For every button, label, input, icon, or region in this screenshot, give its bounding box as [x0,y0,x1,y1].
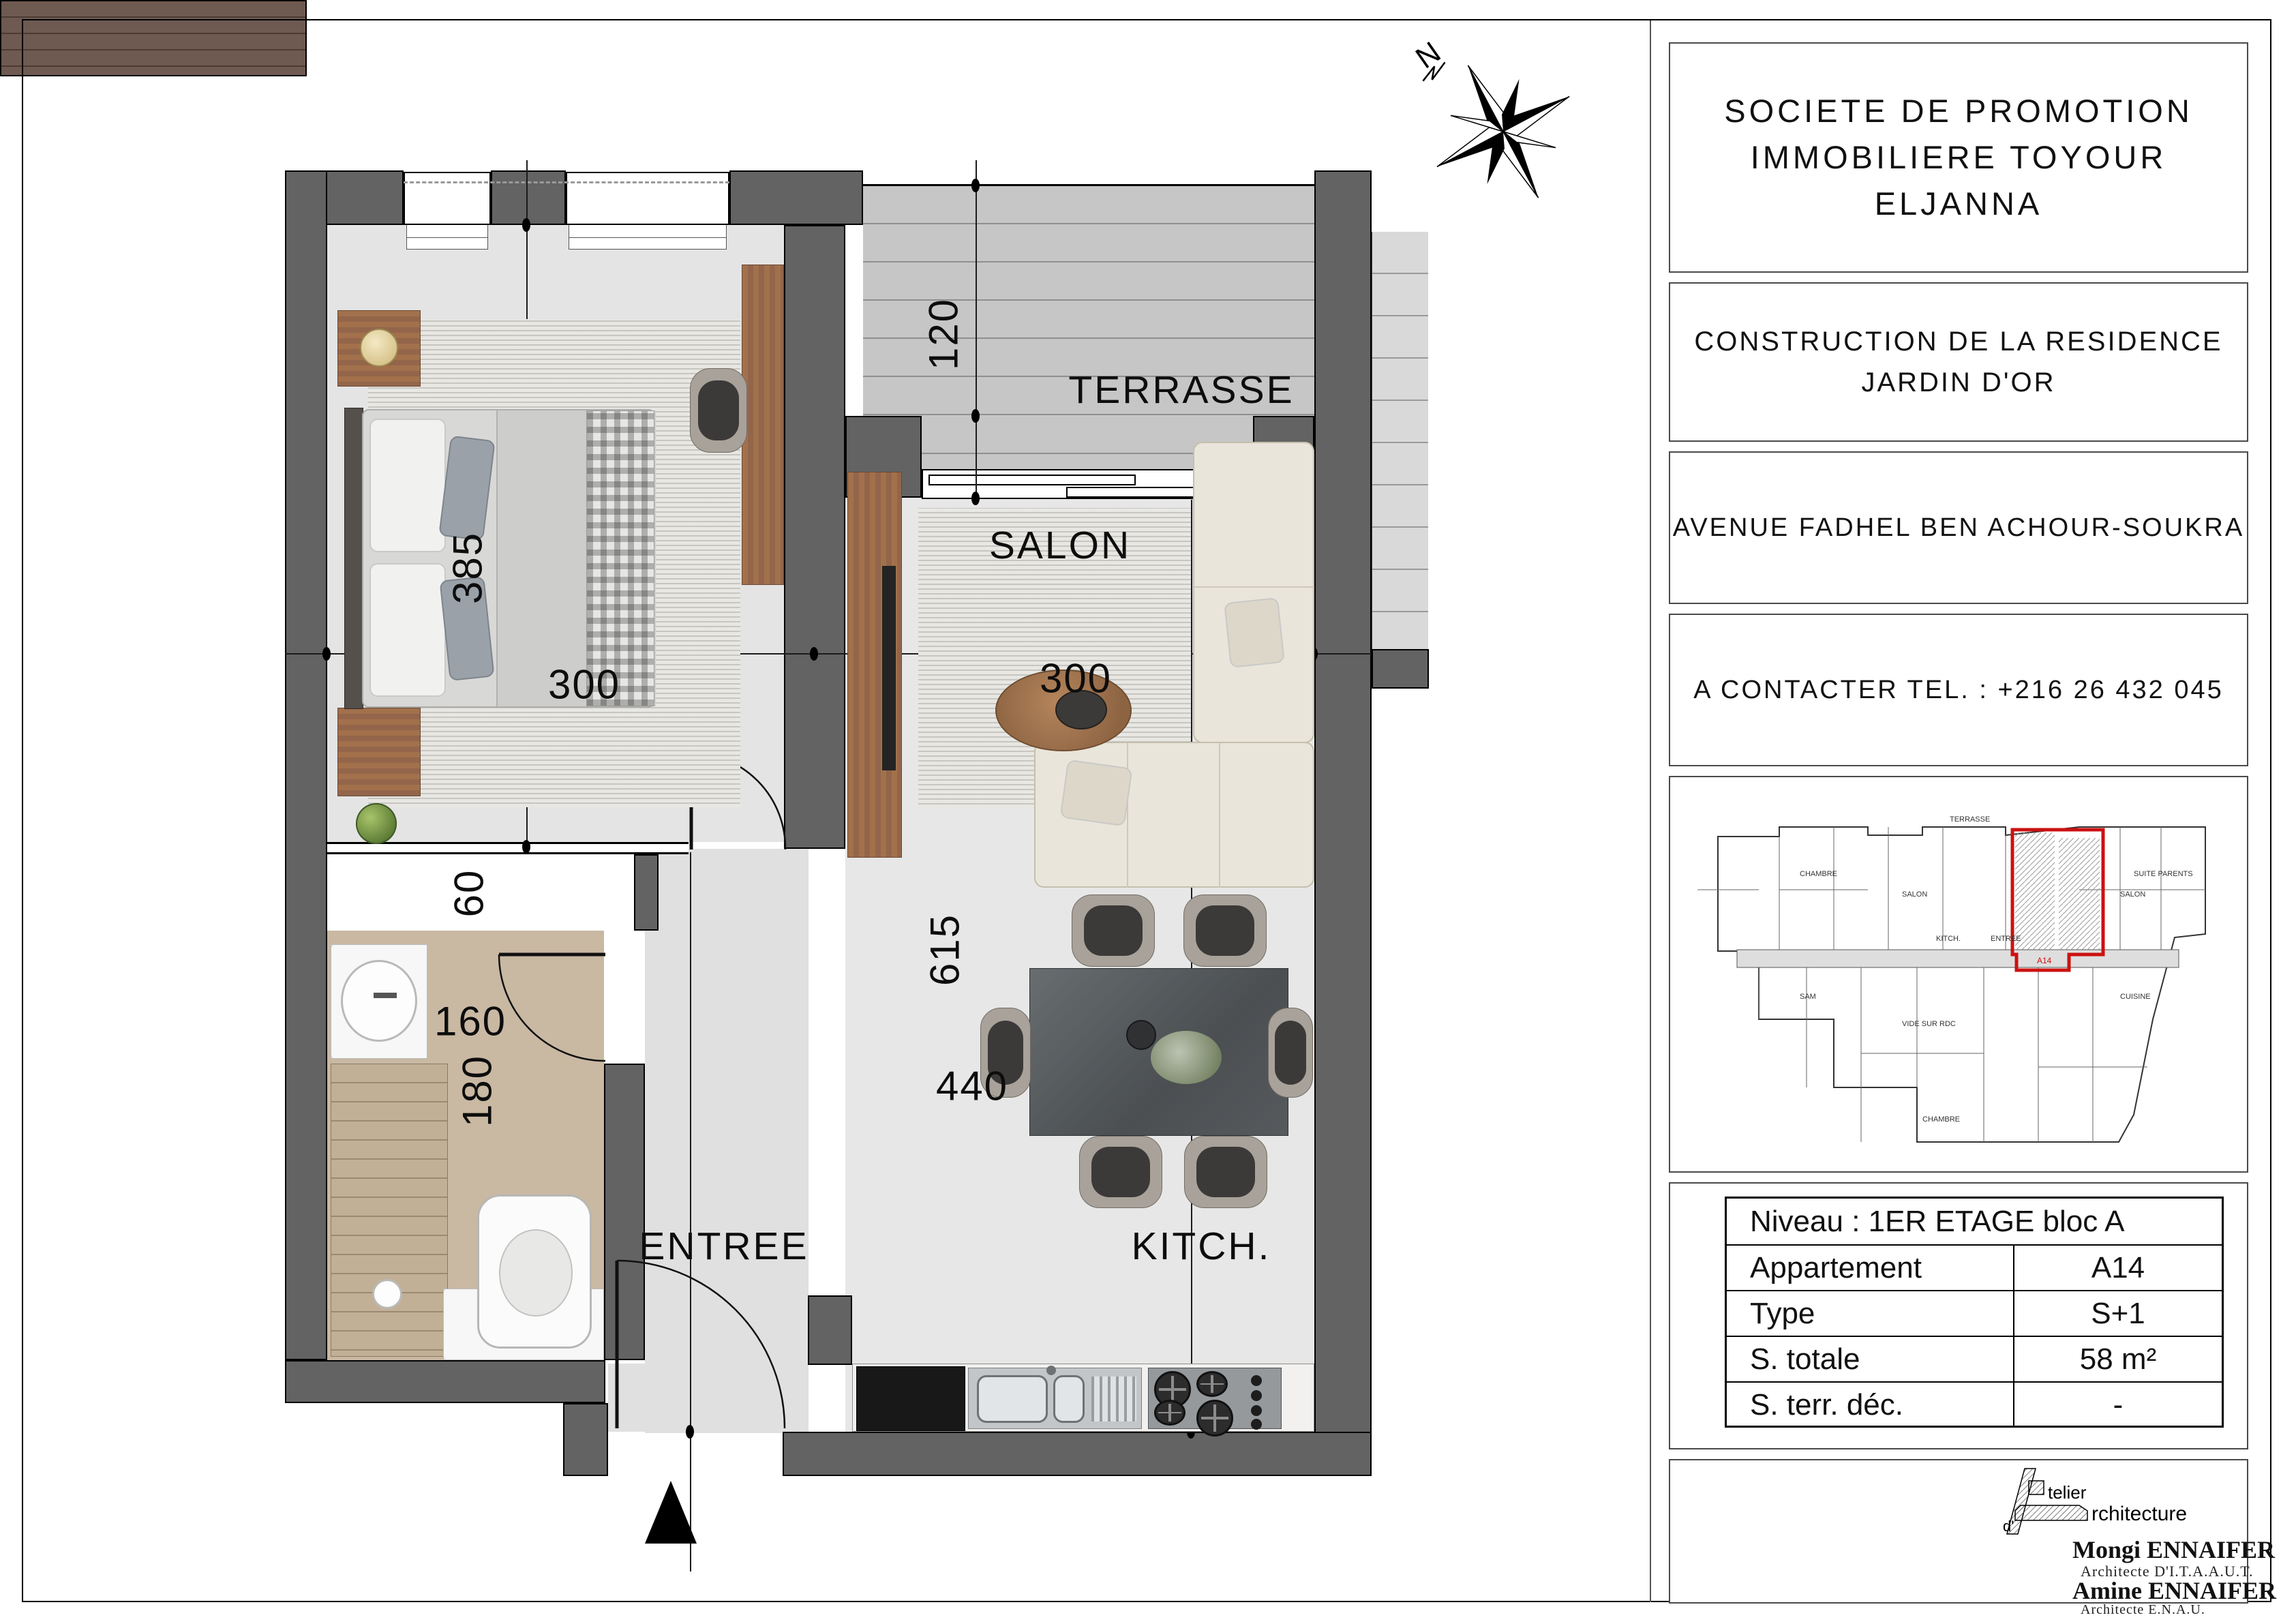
neighbor-wall-cap [1372,649,1429,689]
value-cell: A14 [2013,1246,2222,1290]
sofa-chaise [1193,442,1314,743]
svg-text:SALON: SALON [2120,890,2145,899]
dim-dot [971,492,980,505]
window-axis-dashed-line [404,181,729,183]
architect-name: Mongi ENNAIFER [2072,1535,2275,1564]
gas-stove [1148,1368,1282,1429]
bathroom-door-swing [495,949,609,1065]
dim-bedroom-385: 385 [444,532,492,604]
table-plant [1151,1031,1222,1084]
refrigerator [856,1366,965,1431]
svg-text:KITCH.: KITCH. [1936,935,1961,943]
wall-closet-end [634,854,659,931]
dim-bedroom-300: 300 [548,661,620,708]
dim-bath-160: 160 [434,998,507,1045]
svg-text:CHAMBRE: CHAMBRE [1800,870,1837,878]
svg-text:SALON: SALON [1902,890,1927,899]
north-compass-icon: N [1411,33,1588,217]
room-label-entree: ENTREE [639,1224,809,1269]
table-row: Type S+1 [1727,1290,2222,1336]
toilet [477,1194,592,1349]
address-line: AVENUE FADHEL BEN ACHOUR-SOUKRA [1673,513,2244,543]
bathroom-sink [341,960,417,1042]
wall-bathroom-bottom [285,1360,605,1403]
svg-text:TERRASSE: TERRASSE [1950,815,1990,824]
label-cell: Appartement [1727,1246,2013,1290]
entrance-arrow-icon [645,1481,697,1544]
table-carafe [1126,1020,1156,1050]
wall-top-corner [729,170,863,225]
dim-dot [522,840,530,854]
window-sill [569,225,727,250]
svg-text:ENTREE: ENTREE [1991,935,2021,943]
value-cell: - [2013,1383,2222,1427]
bedroom-window [566,172,729,225]
svg-text:d': d' [2003,1518,2014,1535]
shower-drain [372,1279,402,1309]
dining-chair [1079,1136,1162,1208]
dining-chair [1184,1136,1267,1208]
table-row: S. totale 58 m² [1727,1336,2222,1381]
value-cell: S+1 [2013,1291,2222,1336]
wall-bedroom-living [784,225,845,849]
svg-text:CHAMBRE: CHAMBRE [1922,1115,1960,1124]
shower [331,1064,448,1357]
svg-text:rchitecture: rchitecture [2091,1503,2187,1525]
sink-faucet [374,993,397,998]
key-plan-thumbnail: CHAMBRE SALON TERRASSE SALON KITCH. ENTR… [1697,794,2222,1156]
svg-text:SAM: SAM [1800,993,1816,1001]
room-label-terrasse: TERRASSE [1068,367,1294,412]
room-label-kitchen: KITCH. [1132,1224,1271,1269]
value-cell: 58 m² [2013,1337,2222,1381]
wall-pier [491,170,566,225]
wall-bedroom-south [327,842,689,854]
svg-text:telier: telier [2048,1482,2087,1503]
room-label-salon: SALON [989,523,1131,568]
contact-line: A CONTACTER TEL. : +216 26 432 045 [1693,676,2224,705]
dining-chair [1183,894,1267,967]
bed-pillow [369,563,446,697]
dim-line [976,160,977,500]
label-cell: Type [1727,1291,2013,1336]
architect-title: Architecte E.N.A.U. [2081,1602,2205,1618]
dim-line [1191,500,1192,1432]
window-sill [406,225,488,250]
wall-bottom [783,1432,1372,1476]
table-row: S. terr. déc. - [1727,1381,2222,1427]
dim-dot [322,647,331,661]
bed-pillow [369,419,446,552]
table-row: Niveau : 1ER ETAGE bloc A [1727,1199,2222,1244]
sofa-pillow [1059,760,1132,827]
dim-salon-300: 300 [1040,655,1112,702]
desk-chair [690,368,747,453]
dim-dot [522,218,530,232]
architect-logo: telier d' rchitecture [1997,1463,2243,1538]
dim-dot [971,179,980,192]
dining-chair [1268,1008,1313,1098]
tv [882,566,896,770]
sofa-pillow [1224,597,1285,668]
dim-dot [810,647,818,661]
dim-terrasse-120: 120 [920,298,967,370]
bed-headboard [344,408,363,709]
faucet [1046,1366,1056,1375]
dim-bath-180: 180 [454,1055,501,1127]
svg-text:SUITE PARENTS: SUITE PARENTS [2134,870,2193,878]
nightstand [337,708,421,796]
drawing-sheet: TERRASSE SALON ENTREE KITCH. 120 385 300… [0,0,2296,1624]
dining-chair [1072,894,1155,967]
company-name-box: SOCIETE DE PROMOTION IMMOBILIERE TOYOUR … [1669,42,2248,273]
svg-text:CUISINE: CUISINE [2120,993,2151,1001]
desk [742,265,784,585]
company-line2: IMMOBILIERE TOYOUR ELJANNA [1670,134,2247,227]
neighbor-terrace-strip [1372,232,1428,650]
project-line1: CONSTRUCTION DE LA RESIDENCE [1694,321,2222,362]
label-cell: S. terr. déc. [1727,1383,2013,1427]
architect-name: Amine ENNAIFER [2072,1576,2276,1605]
contact-box: A CONTACTER TEL. : +216 26 432 045 [1669,614,2248,766]
wall-left [285,170,327,1360]
wall-right [1314,170,1372,1476]
plant-pot [356,803,397,844]
dim-line [690,852,691,1572]
svg-text:VIDE SUR RDC: VIDE SUR RDC [1902,1020,1956,1028]
project-box: CONSTRUCTION DE LA RESIDENCE JARDIN D'OR [1669,282,2248,442]
panel-divider [1650,20,1651,1602]
wall-bottom-left-corner [563,1403,608,1476]
kitchen-sink [968,1368,1142,1429]
svg-text:N: N [1411,35,1447,75]
dim-closet-60: 60 [446,869,493,918]
label-cell: S. totale [1727,1337,2013,1381]
dim-living-440: 440 [936,1063,1008,1110]
niveau-cell: Niveau : 1ER ETAGE bloc A [1727,1199,2222,1244]
svg-text:A14: A14 [2037,956,2052,965]
table-lamp [360,329,398,367]
dim-dot [971,409,980,423]
project-line2: JARDIN D'OR [1861,362,2055,403]
company-line1: SOCIETE DE PROMOTION [1724,88,2193,134]
address-box: AVENUE FADHEL BEN ACHOUR-SOUKRA [1669,451,2248,604]
entry-door-swing [610,1258,789,1435]
bedroom-window [404,172,491,225]
wall-entry-kitchen [808,1295,852,1365]
apartment-table: Niveau : 1ER ETAGE bloc A Appartement A1… [1725,1197,2224,1428]
dim-living-615: 615 [922,914,969,986]
table-row: Appartement A14 [1727,1244,2222,1290]
